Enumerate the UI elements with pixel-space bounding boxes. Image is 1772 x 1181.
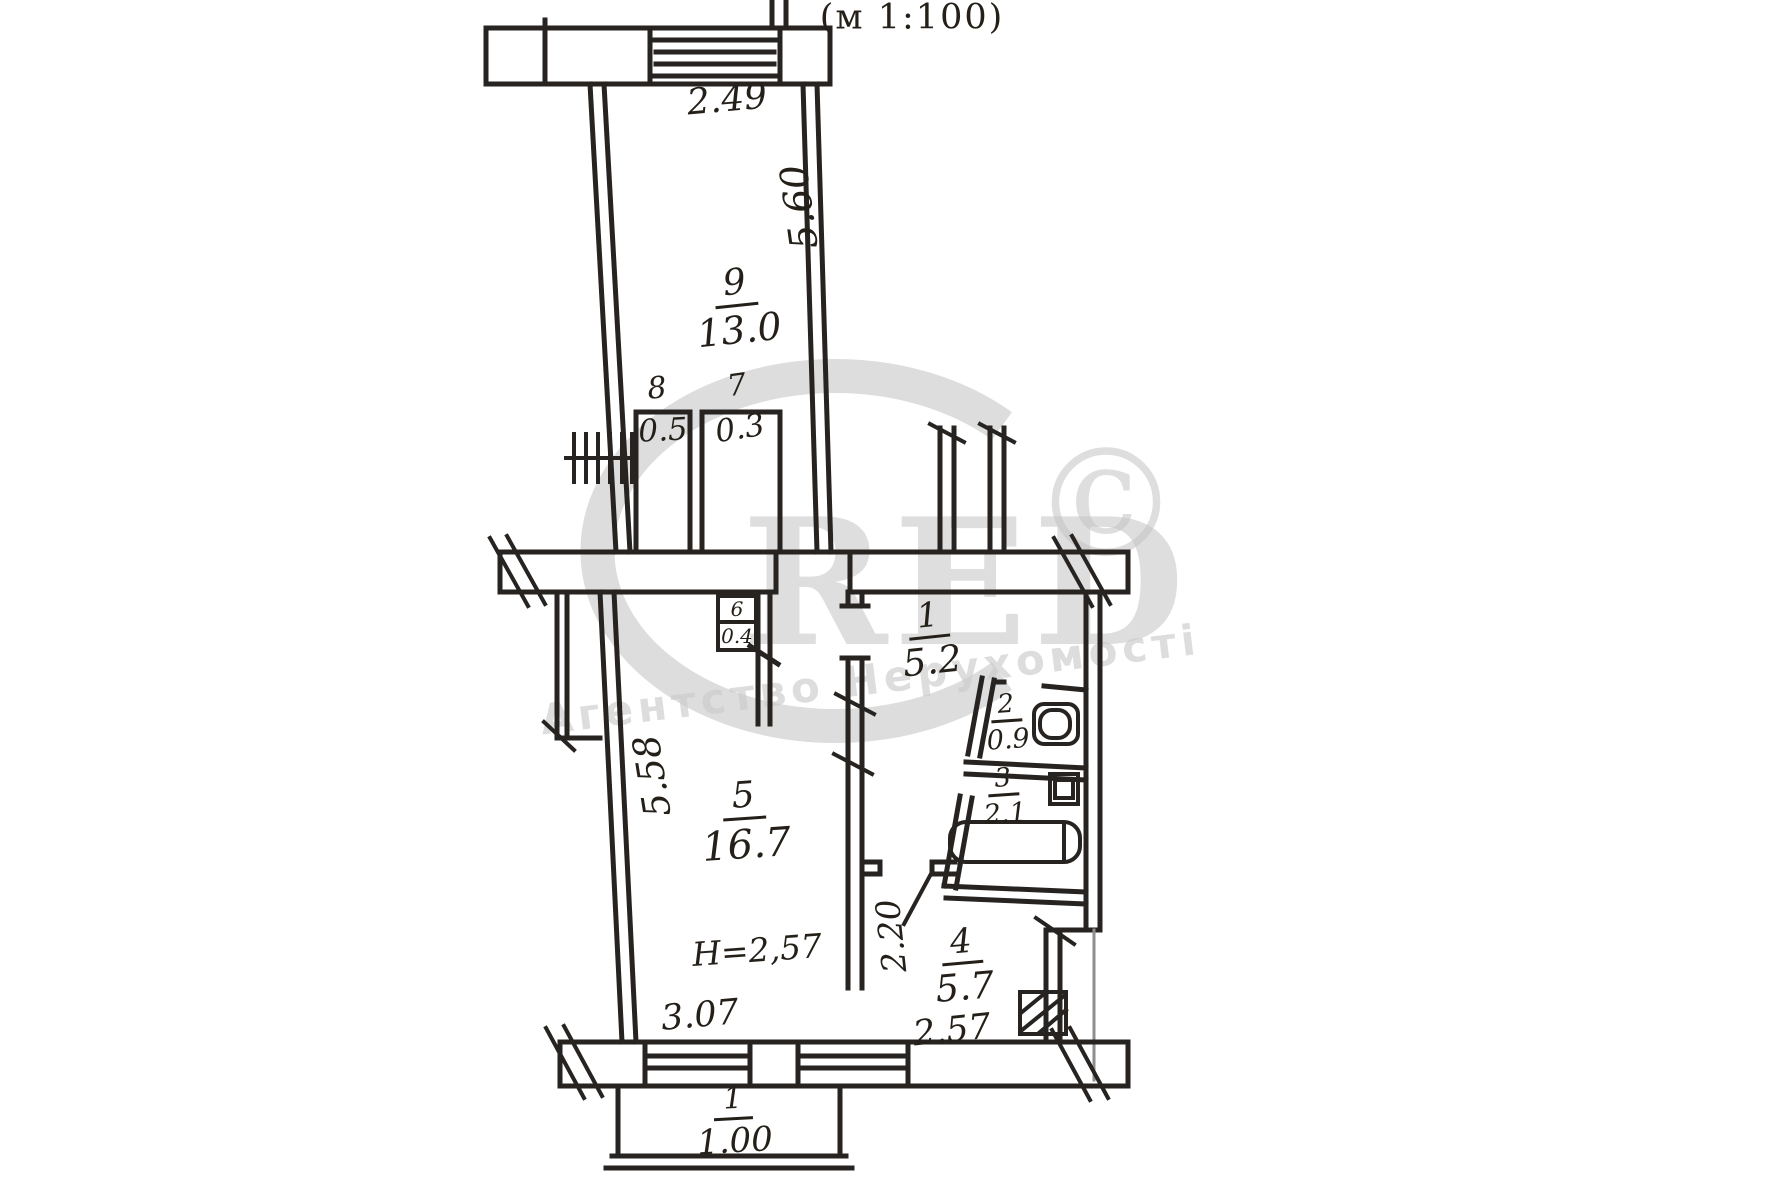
kitchen4-area: 5.7 xyxy=(934,966,996,1010)
bath3-label: 3 2.1 xyxy=(980,764,1027,830)
scale-note: (м 1:100) xyxy=(820,1,1005,36)
wc2-area: 0.9 xyxy=(986,725,1031,756)
closet6-area: 0.4 xyxy=(721,626,753,647)
balcony-area: 1.00 xyxy=(696,1122,773,1162)
room9-area: 13.0 xyxy=(695,307,783,356)
ceiling-height-note: Н=2,57 xyxy=(691,929,823,971)
closet6-label: 6 0.4 xyxy=(721,599,753,647)
floor-plan-linework: RED © Агентство Нерухомості xyxy=(0,0,1772,1181)
closet8-area: 0.5 xyxy=(638,414,689,448)
bath3-area: 2.1 xyxy=(983,799,1028,830)
balcony-number: 1 xyxy=(712,1083,753,1121)
window-living-icon xyxy=(645,1042,750,1086)
window-kitchen-icon xyxy=(798,1042,908,1086)
hall1-label: 1 5.2 xyxy=(896,596,963,685)
watermark-copyright-icon: © xyxy=(1031,418,1181,592)
dim-kitchen-width: 2.57 xyxy=(911,1010,992,1053)
kitchen4-number: 4 xyxy=(939,923,984,966)
kitchen4-label: 4 5.7 xyxy=(930,922,996,1010)
closet7-area: 0.3 xyxy=(713,410,767,448)
dim-living5-width: 3.07 xyxy=(660,995,741,1037)
sink-fixture-icon xyxy=(1050,774,1078,804)
wc2-number: 2 xyxy=(990,690,1023,723)
dim-room9-depth: 5.60 xyxy=(774,162,823,251)
wc2-label: 2 0.9 xyxy=(983,690,1030,756)
bath3-number: 3 xyxy=(987,764,1020,797)
room9-label: 9 13.0 xyxy=(690,261,783,355)
hall1-number: 1 xyxy=(905,597,951,641)
living5-number: 5 xyxy=(721,777,767,822)
dim-kitchen-depth: 2.20 xyxy=(871,898,912,975)
toilet-fixture-icon xyxy=(1034,704,1078,744)
living5-label: 5 16.7 xyxy=(698,775,793,869)
closet8-number: 8 xyxy=(646,373,668,405)
room9-number: 9 xyxy=(711,263,758,309)
floor-plan-scan: RED © Агентство Нерухомості xyxy=(0,0,1772,1181)
closet6-number: 6 xyxy=(725,599,750,622)
dim-room9-width: 2.49 xyxy=(686,79,769,122)
closet7-number: 7 xyxy=(725,370,748,402)
balcony-label: 1 1.00 xyxy=(694,1082,774,1162)
lower-left-wall xyxy=(544,592,636,1042)
living5-area: 16.7 xyxy=(701,821,793,869)
hall1-area: 5.2 xyxy=(901,639,964,684)
